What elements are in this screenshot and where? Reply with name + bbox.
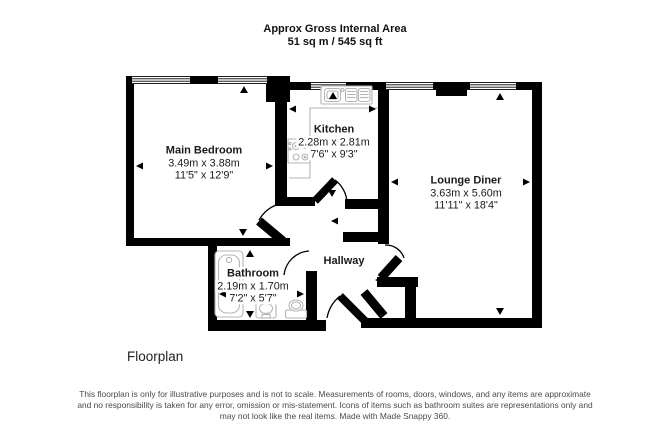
room-label-hallway: Hallway	[322, 255, 367, 268]
room-size-metric: 3.49m x 3.88m	[166, 157, 241, 169]
arrow-left-icon	[331, 218, 338, 225]
entry-angled-wall	[364, 292, 384, 316]
room-size-metric: 2.28m x 2.81m	[296, 136, 371, 148]
gross-internal-area-header: Approx Gross Internal Area 51 sq m / 545…	[263, 23, 406, 49]
room-label-kitchen: Kitchen 2.28m x 2.81m 7'6" x 9'3"	[296, 123, 371, 161]
wall-bathroom-door-side	[306, 271, 317, 323]
room-size-imperial: 11'11" x 18'4"	[432, 199, 500, 211]
arrow-up-icon	[240, 86, 248, 93]
disclaimer-line3: may not look like the real items. Made w…	[0, 411, 670, 422]
room-name: Lounge Diner	[429, 174, 504, 186]
arrow-left-icon	[391, 179, 398, 186]
room-label-lounge-diner: Lounge Diner 3.63m x 5.60m 11'11" x 18'4…	[428, 174, 503, 212]
floorplan-page: Approx Gross Internal Area 51 sq m / 545…	[0, 0, 670, 435]
arrow-right-icon	[369, 106, 376, 113]
room-label-main-bedroom: Main Bedroom 3.49m x 3.88m 11'5" x 12'9"	[164, 144, 244, 182]
arrow-down-icon	[496, 308, 504, 315]
wall-left	[126, 76, 134, 246]
room-size-metric: 3.63m x 5.60m	[428, 187, 503, 199]
room-size-metric: 2.19m x 1.70m	[215, 280, 290, 292]
header-line1: Approx Gross Internal Area	[263, 23, 406, 36]
room-label-bathroom: Bathroom 2.19m x 1.70m 7'2" x 5'7"	[215, 267, 290, 305]
room-name: Hallway	[322, 255, 367, 267]
disclaimer-text: This floorplan is only for illustrative …	[0, 389, 670, 421]
arrow-up-icon	[246, 250, 254, 257]
sink-drainer-icon	[321, 86, 372, 104]
front-door-leaf	[340, 296, 365, 321]
floorplan-drawing	[0, 0, 670, 435]
window-bedroom-2	[218, 76, 267, 84]
arrow-up-icon	[496, 93, 504, 100]
arrow-left-icon	[136, 163, 143, 170]
wall-bottom-right	[361, 318, 542, 328]
window-lounge-2	[470, 82, 516, 90]
lounge-door-leaf	[381, 258, 399, 278]
disclaimer-line1: This floorplan is only for illustrative …	[0, 389, 670, 400]
window-lounge-1	[386, 82, 433, 90]
bedroom-door-arc	[259, 204, 279, 220]
arrow-down-icon	[246, 311, 254, 318]
room-name: Bathroom	[225, 267, 281, 279]
room-size-imperial: 7'2" x 5'7"	[227, 292, 278, 304]
wall-pier	[436, 82, 467, 96]
window-bedroom-1	[132, 76, 190, 84]
header-line2: 51 sq m / 545 sq ft	[263, 36, 406, 49]
wall-hall-notch	[343, 232, 389, 242]
arrow-right-icon	[297, 291, 304, 298]
arrow-right-icon	[266, 163, 273, 170]
arrow-down-icon	[328, 190, 336, 197]
wall-lounge-right	[532, 82, 542, 328]
room-name: Kitchen	[312, 123, 356, 135]
floorplan-caption: Floorplan	[127, 349, 183, 364]
wall-bedroom-kitchen-divider	[275, 76, 287, 206]
wall-kitchen-bottom-left	[275, 197, 315, 206]
lounge-door-arc	[385, 245, 404, 258]
arrow-right-icon	[523, 179, 530, 186]
arrow-left-icon	[289, 106, 296, 113]
disclaimer-line2: and no responsibility is taken for any e…	[0, 400, 670, 411]
wall-kitchen-lounge-divider	[378, 82, 389, 244]
room-name: Main Bedroom	[164, 144, 244, 156]
arrow-down-icon	[239, 229, 247, 236]
room-size-imperial: 11'5" x 12'9"	[173, 169, 235, 181]
room-size-imperial: 7'6" x 9'3"	[308, 148, 359, 160]
